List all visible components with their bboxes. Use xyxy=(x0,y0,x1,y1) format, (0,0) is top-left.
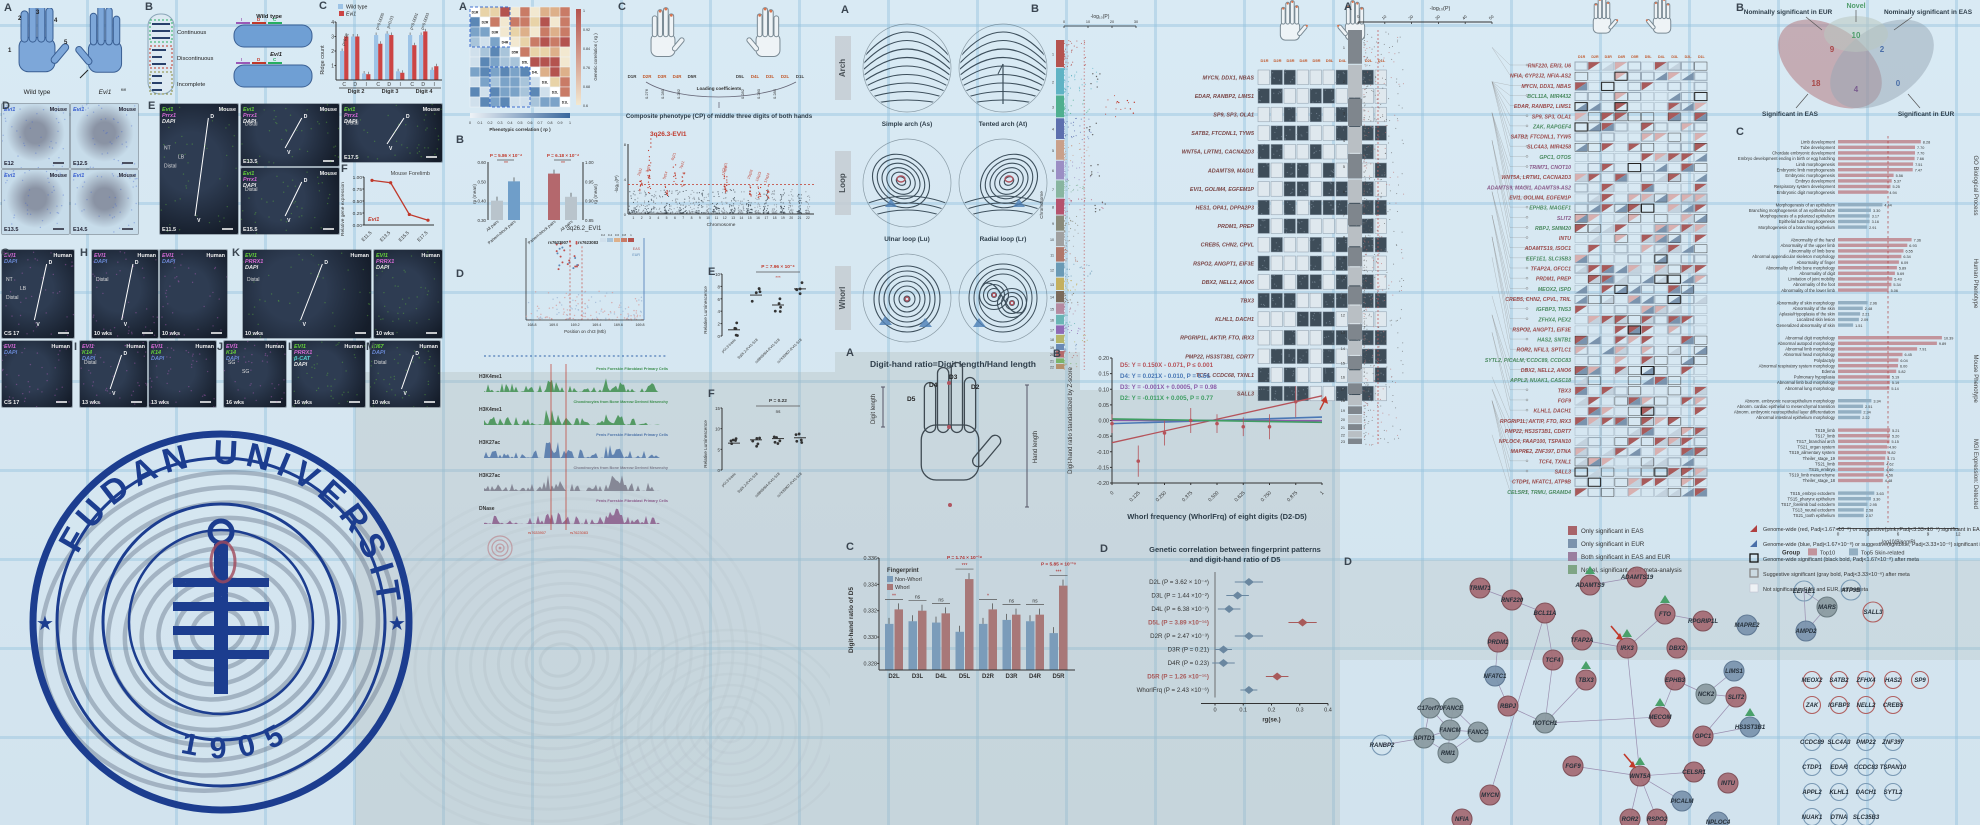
snp-dot xyxy=(1364,191,1365,192)
snp-dot xyxy=(679,207,680,208)
snp-dot xyxy=(636,209,637,210)
gene-label: GPC1, OTOS xyxy=(1539,155,1571,161)
snp-dot xyxy=(1393,264,1394,265)
finger xyxy=(106,8,112,45)
sig-marker: *** xyxy=(962,563,968,569)
dot xyxy=(779,310,782,313)
cell-eas xyxy=(1588,174,1600,182)
ld-dot xyxy=(577,303,578,304)
panel-label-ml-c: C xyxy=(618,1,626,13)
legend-swatch xyxy=(887,584,893,590)
snp-dot xyxy=(1368,128,1369,129)
snp-dot xyxy=(661,212,662,213)
snp-dot xyxy=(790,212,791,213)
snp-dot xyxy=(634,210,635,211)
cell-border xyxy=(1681,326,1693,334)
snp-dot xyxy=(655,191,656,192)
snp-dot xyxy=(1074,229,1075,230)
snp-dot xyxy=(1068,180,1069,181)
expression-line-chart: 0.000.250.500.751.00Relative gene expres… xyxy=(338,165,442,245)
heatmap-cell xyxy=(500,87,510,97)
texture xyxy=(1276,242,1277,243)
snp-dot xyxy=(639,206,640,207)
forest-diamond xyxy=(1224,605,1234,613)
snp-dot xyxy=(1067,211,1068,212)
snp-dot xyxy=(1382,88,1383,89)
chrom-num: 9 xyxy=(1343,256,1345,260)
texture xyxy=(1290,230,1291,231)
fingertip-photo xyxy=(234,25,312,47)
forest-diamond xyxy=(1272,673,1282,681)
ld-dot xyxy=(548,292,549,293)
finger-label: D5L xyxy=(736,74,745,79)
cell-border xyxy=(1628,306,1640,314)
cell-border xyxy=(1588,488,1600,496)
text-label: 50 xyxy=(1488,14,1495,21)
heatmap-cell xyxy=(490,57,500,67)
col-header: D1L xyxy=(1698,55,1706,59)
snp-dot xyxy=(1399,86,1400,87)
cell-border xyxy=(1668,336,1680,344)
snp-dot xyxy=(706,211,707,212)
ridge-class-label: Discontinuous xyxy=(177,56,214,62)
term-label: Morphogenesis of a branching epithelium xyxy=(1758,225,1835,230)
ld-dot xyxy=(641,297,642,298)
snp-dot xyxy=(653,196,654,197)
snp-dot xyxy=(781,208,782,209)
bar xyxy=(1059,586,1068,670)
cell-eas xyxy=(1681,123,1693,131)
cell-border xyxy=(1642,204,1654,212)
ld-dot xyxy=(638,304,639,305)
snp-dot xyxy=(1364,149,1365,150)
cell-border xyxy=(1588,387,1600,395)
cell-eur xyxy=(1655,255,1667,263)
snp-dot xyxy=(690,212,691,213)
cell xyxy=(1258,200,1270,215)
snp-dot xyxy=(1376,177,1377,178)
cell-border xyxy=(1681,82,1693,90)
snp-dot xyxy=(1364,134,1365,135)
text-label: 0.20 xyxy=(1099,356,1110,362)
cell xyxy=(1297,237,1309,252)
texture xyxy=(1304,189,1305,190)
snp-dot xyxy=(647,212,648,213)
snp-dot xyxy=(731,190,732,191)
snp-dot xyxy=(634,199,635,200)
snp-dot xyxy=(693,208,694,209)
ld-legend xyxy=(614,238,620,242)
texture xyxy=(1290,193,1291,194)
print-caption: Simple arch (As) xyxy=(882,121,932,128)
texture xyxy=(1280,92,1281,93)
snp-dot xyxy=(1364,102,1365,103)
heatmap-cell xyxy=(560,7,570,17)
ld-dot xyxy=(639,315,640,316)
texture xyxy=(1319,101,1320,102)
snp-dot xyxy=(1105,114,1106,115)
peak-label: 5q14 xyxy=(662,171,668,180)
cell-border xyxy=(1575,123,1587,131)
heatmap-cell xyxy=(470,67,480,77)
snp-dot xyxy=(1066,288,1067,289)
snp-dot xyxy=(1063,210,1064,211)
snp-dot xyxy=(634,207,635,208)
finger xyxy=(1598,0,1601,19)
snp-dot xyxy=(693,192,694,193)
snp-dot xyxy=(646,209,647,210)
chrom-tick: 8 xyxy=(691,216,693,220)
digit-length-label: Digit length xyxy=(871,394,877,424)
heatmap-cell xyxy=(500,27,510,37)
snp-dot xyxy=(1066,190,1067,191)
snp-dot xyxy=(1365,360,1366,361)
snp-dot xyxy=(645,212,646,213)
snp-dot xyxy=(1364,228,1365,229)
value-label: 7.47 xyxy=(1915,168,1922,172)
snp-dot xyxy=(659,208,660,209)
snp-dot xyxy=(1365,378,1366,379)
ridge xyxy=(879,271,935,327)
snp-dot xyxy=(773,210,774,211)
snp-dot xyxy=(1365,50,1366,51)
chrom-band xyxy=(1348,154,1362,179)
peak-dot xyxy=(641,182,642,183)
texture xyxy=(1291,167,1292,168)
value-label: 4.94 xyxy=(1889,191,1896,195)
panel-venn: NovelNominally significant in EURNominal… xyxy=(1730,0,1980,122)
snp-dot xyxy=(1063,112,1064,113)
heatmap-cell xyxy=(510,7,520,17)
value-label: 2.96 xyxy=(1870,301,1877,305)
snp-dot xyxy=(1389,184,1390,185)
value-label: 7.66 xyxy=(1917,157,1924,161)
snp-dot xyxy=(1066,299,1067,300)
cell-border xyxy=(1655,387,1667,395)
snp-dot xyxy=(1063,174,1064,175)
snp-dot xyxy=(1063,256,1064,257)
snp-dot xyxy=(1066,252,1067,253)
cell-border xyxy=(1668,458,1680,466)
snp-dot xyxy=(1381,249,1382,250)
cell-border xyxy=(1642,92,1654,100)
texture xyxy=(1265,295,1266,296)
texture xyxy=(1259,100,1260,101)
ld-dot xyxy=(599,300,600,301)
snp-dot xyxy=(766,210,767,211)
ridge xyxy=(884,276,930,322)
snp-dot xyxy=(1066,181,1067,182)
chrom-num: 12 xyxy=(1050,269,1054,273)
snp-dot xyxy=(1388,414,1389,415)
snp-dot xyxy=(757,204,758,205)
snp-dot xyxy=(1063,208,1064,209)
snp-dot xyxy=(660,212,661,213)
texture xyxy=(1258,201,1259,202)
chrom-num: 16 xyxy=(1050,319,1054,323)
snp-dot xyxy=(1364,40,1365,41)
cell-eas xyxy=(1602,164,1614,172)
cell-border xyxy=(1615,255,1627,263)
cell-eur xyxy=(1695,214,1707,222)
snp-dot xyxy=(1364,292,1365,293)
bar xyxy=(565,197,577,220)
snp-dot xyxy=(1096,72,1097,73)
snp-dot xyxy=(1396,82,1397,83)
cell-border xyxy=(1575,275,1587,283)
snp-dot xyxy=(1379,225,1380,226)
snp-dot xyxy=(1374,179,1375,180)
heatmap-cell xyxy=(470,57,480,67)
forest-row-label: D2R (P = 2.47 ×10⁻³) xyxy=(1150,633,1209,640)
snp-dot xyxy=(694,212,695,213)
snp-dot xyxy=(1069,309,1070,310)
dot xyxy=(779,297,782,300)
snp-dot xyxy=(1116,102,1117,103)
snp-dot xyxy=(683,208,684,209)
snp-dot xyxy=(1365,238,1366,239)
cell-border xyxy=(1695,458,1707,466)
cell-eas xyxy=(1628,194,1640,202)
peak-dot xyxy=(768,191,769,192)
snp-dot xyxy=(1065,215,1066,216)
snp-dot xyxy=(1373,284,1374,285)
bar xyxy=(378,44,382,80)
leader-line xyxy=(1492,82,1526,157)
pointer-arrow xyxy=(80,70,88,78)
peak-dot xyxy=(1097,164,1098,165)
col-header: D3R xyxy=(1286,58,1294,63)
snp-dot xyxy=(1402,364,1403,365)
snp-dot xyxy=(702,206,703,207)
snp-dot xyxy=(1364,351,1365,352)
peak-dot xyxy=(749,185,750,186)
snp-dot xyxy=(767,208,768,209)
chrom-tick: 9 xyxy=(699,216,701,220)
text-label: ** xyxy=(561,161,565,167)
snp-dot xyxy=(797,196,798,197)
ld-dot xyxy=(567,318,568,319)
snp-dot xyxy=(1386,85,1387,86)
snp-dot xyxy=(1381,422,1382,423)
cell-eur xyxy=(1668,62,1680,70)
cell-border xyxy=(1695,245,1707,253)
texture xyxy=(1333,298,1334,299)
cell-border xyxy=(1575,316,1587,324)
heatmap-cell xyxy=(560,27,570,37)
snp-dot xyxy=(1368,119,1369,120)
cell-border xyxy=(1668,164,1680,172)
peak-dot xyxy=(665,191,666,192)
snp-dot xyxy=(1065,223,1066,224)
text-label: 40 xyxy=(1461,14,1468,21)
chrom-band xyxy=(1056,118,1064,139)
snp-dot xyxy=(1402,258,1403,259)
snp-dot xyxy=(776,206,777,207)
panel-label-dg-d: D xyxy=(1100,543,1108,555)
cell-eur xyxy=(1655,194,1667,202)
cell-border xyxy=(1602,72,1614,80)
cell xyxy=(1323,107,1335,122)
cell xyxy=(1258,89,1270,104)
heatmap-cell xyxy=(550,57,560,67)
enrichment-bar xyxy=(1838,347,1917,350)
snp-dot xyxy=(1366,373,1367,374)
snp-dot xyxy=(1375,77,1376,78)
snp-dot xyxy=(1378,327,1379,328)
cell-eur xyxy=(1628,285,1640,293)
cell xyxy=(1271,275,1283,290)
cell-border xyxy=(1602,103,1614,111)
snp-dot xyxy=(1388,34,1389,35)
snp-dot xyxy=(702,202,703,203)
snp-dot xyxy=(798,201,799,202)
snp-dot xyxy=(1364,219,1365,220)
cell-eur xyxy=(1695,346,1707,354)
ld-dot xyxy=(584,316,585,317)
peak-dot xyxy=(667,194,668,195)
snp-dot xyxy=(1065,276,1066,277)
snp-dot xyxy=(1120,109,1121,110)
snp-dot xyxy=(685,206,686,207)
snp-dot xyxy=(1067,240,1068,241)
cell-eas xyxy=(1668,326,1680,334)
cbar-tick: 1 xyxy=(569,121,571,125)
text-label: 30 xyxy=(1134,20,1138,24)
snp-dot xyxy=(648,204,649,205)
snp-dot xyxy=(1364,376,1365,377)
snp-dot xyxy=(1079,125,1080,126)
finger xyxy=(113,16,119,45)
snp-dot xyxy=(1064,145,1065,146)
snp-dot xyxy=(1364,326,1365,327)
leader-line xyxy=(1492,215,1526,298)
snp-dot xyxy=(703,212,704,213)
peak-dot xyxy=(724,184,725,185)
enrichment-bar xyxy=(1838,185,1891,188)
snp-dot xyxy=(1064,304,1065,305)
heatmap-cell xyxy=(480,97,490,107)
snp-dot xyxy=(735,209,736,210)
snp-dot xyxy=(1388,136,1389,137)
snp-dot xyxy=(667,212,668,213)
snp-dot xyxy=(664,190,665,191)
snp-dot xyxy=(1082,139,1083,140)
chrom-band xyxy=(1348,267,1362,285)
cell-border xyxy=(1642,214,1654,222)
peak-dot xyxy=(1090,175,1091,176)
dot xyxy=(758,287,761,290)
snp-dot xyxy=(1376,215,1377,216)
snp-dot xyxy=(1066,250,1067,251)
leader-line xyxy=(1492,140,1526,227)
diag-label: D5L xyxy=(522,61,528,65)
snp-dot xyxy=(1367,405,1368,406)
peak-dot xyxy=(650,162,651,163)
strip-plot: 0246810Relative LuminescencepGL3-basic3q… xyxy=(700,258,818,376)
snp-dot xyxy=(1081,43,1082,44)
bar xyxy=(979,624,988,670)
snp-dot xyxy=(1076,168,1077,169)
snp-dot xyxy=(1064,190,1065,191)
texture xyxy=(1325,301,1326,302)
snp-dot xyxy=(740,201,741,202)
snp-dot xyxy=(1064,293,1065,294)
cell-border xyxy=(1628,123,1640,131)
panel-label-r-c: C xyxy=(1736,126,1744,138)
snp-dot xyxy=(742,204,743,205)
snp-dot xyxy=(1386,213,1387,214)
snp-dot xyxy=(1067,302,1068,303)
legend-label: Only significant in EAS xyxy=(1581,528,1644,535)
cell xyxy=(1258,126,1270,141)
snp-dot xyxy=(1064,64,1065,65)
texture xyxy=(1262,265,1263,266)
cell-border xyxy=(1695,62,1707,70)
snp-dot xyxy=(1367,72,1368,73)
snp-dot xyxy=(1391,152,1392,153)
snp-dot xyxy=(677,207,678,208)
cbar-tick: 0.8 xyxy=(548,121,553,125)
chrom-band xyxy=(1348,431,1362,437)
snp-dot xyxy=(1073,189,1074,190)
snp-dot xyxy=(767,198,768,199)
snp-dot xyxy=(1064,148,1065,149)
ld-dot xyxy=(552,298,553,299)
snp-dot xyxy=(1068,147,1069,148)
snp-dot xyxy=(641,205,642,206)
snp-dot xyxy=(1071,275,1072,276)
snp-dot xyxy=(1064,247,1065,248)
snp-dot xyxy=(710,208,711,209)
snp-dot xyxy=(1399,291,1400,292)
cell-eur xyxy=(1642,367,1654,375)
ld-dot xyxy=(596,311,597,312)
snp-dot xyxy=(1072,221,1073,222)
snp-dot xyxy=(1364,340,1365,341)
gene-label: TRIM71, CNOT10 xyxy=(1529,165,1571,171)
chrom-tick: 2 xyxy=(641,216,643,220)
cell-eur xyxy=(1655,275,1667,283)
snp-dot xyxy=(1064,325,1065,326)
snp-dot xyxy=(756,193,757,194)
x-tick: 0.875 xyxy=(1286,490,1299,503)
texture xyxy=(1276,285,1277,286)
snp-dot xyxy=(1066,322,1067,323)
snp-dot xyxy=(1365,222,1366,223)
ld-dot xyxy=(575,308,576,309)
snp-dot xyxy=(723,198,724,199)
dot xyxy=(799,292,802,295)
snp-dot xyxy=(1402,372,1403,373)
figure-root: A B C D E F G H I J K L M A B C D E F A … xyxy=(0,0,1980,825)
snp-dot xyxy=(734,197,735,198)
fingertip-dot xyxy=(1296,6,1298,8)
snp-dot xyxy=(1379,62,1380,63)
cell-border xyxy=(1588,427,1600,435)
snp-dot xyxy=(789,205,790,206)
snp-dot xyxy=(756,212,757,213)
texture xyxy=(1314,152,1315,153)
texture xyxy=(1272,274,1273,275)
ld-dot xyxy=(528,302,529,303)
snp-dot xyxy=(1366,92,1367,93)
snp-dot xyxy=(706,206,707,207)
peak-dot xyxy=(726,182,727,183)
snp-dot xyxy=(1072,162,1073,163)
enrichment-bar xyxy=(1838,255,1901,258)
cell-border xyxy=(1668,143,1680,151)
